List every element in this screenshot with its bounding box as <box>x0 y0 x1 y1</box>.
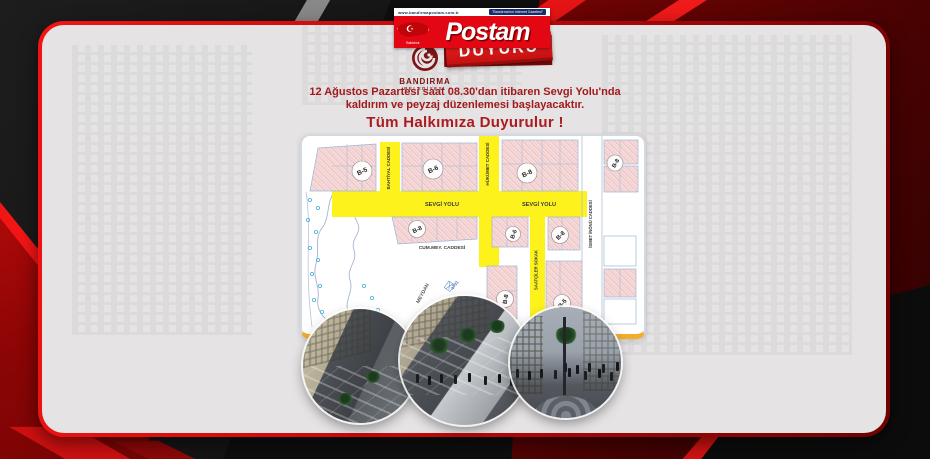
street-label: SEVGİ YOLU <box>522 201 556 208</box>
announcement-headline: Tüm Halkımıza Duyurulur ! <box>42 114 888 131</box>
turkey-map-icon: ☪ Balıkesir <box>397 19 431 45</box>
block-badge: B-6 <box>423 159 443 179</box>
slogan-badge: "Bandırma'nın İnternet Gazetesi" <box>489 9 546 15</box>
block-badge: B-8 <box>409 221 426 238</box>
street-label: İSMET İNÖNÜ CADDESİ <box>588 200 593 247</box>
municipality-name: BANDIRMA <box>396 77 454 86</box>
postam-logo-main: ☪ Balıkesir Postam <box>394 16 550 48</box>
crescent-star-icon: ☪ <box>406 22 414 36</box>
postam-wordmark: Postam <box>431 17 550 47</box>
masthead-strip: www.bandirmapostam.com.tr "Bandırma'nın … <box>394 8 550 16</box>
street-render-ground-right <box>510 307 621 418</box>
block-badge: B-8 <box>517 163 537 183</box>
announcement-line-2: kaldırım ve peyzaj düzenlemesi başlayaca… <box>42 99 888 111</box>
region-label: Balıkesir <box>397 41 429 45</box>
block-badge: B-8 <box>552 227 569 244</box>
pedestrian-silhouettes <box>588 363 591 372</box>
announcement-line-1: 12 Ağustos Pazartesi saat 08.30'dan itib… <box>42 86 888 98</box>
block-badge: B-5 <box>352 161 372 181</box>
street-label: SEVGİ YOLU <box>425 201 459 208</box>
street-label: BAHTİYAL CADDESİ <box>386 147 391 190</box>
site-url: www.bandirmapostam.com.tr <box>398 10 459 15</box>
block-badge: B-6 <box>506 227 521 242</box>
street-label: HÜKÜMET CADDESİ <box>485 143 490 186</box>
palm-tree-icon <box>554 327 578 344</box>
building-facade <box>510 316 543 394</box>
circular-paving <box>534 396 598 418</box>
palm-tree-icon <box>365 371 381 383</box>
block-badge: B-8 <box>607 155 623 171</box>
municipality-subtitle: BELEDİYESİ <box>396 86 454 91</box>
pedestrian-silhouettes <box>540 369 543 378</box>
block-badge: B-8 <box>497 291 514 308</box>
building-facade <box>583 311 621 391</box>
pedestrian-silhouettes <box>440 374 443 383</box>
street-pole <box>563 317 566 395</box>
palm-tree-icon <box>458 328 478 343</box>
postam-logo: www.bandirmapostam.com.tr "Bandırma'nın … <box>394 8 550 48</box>
palm-tree-icon <box>337 393 353 405</box>
building-facade <box>303 309 371 369</box>
palm-tree-icon <box>428 338 450 354</box>
street-label: CUM.MEY. CADDESİ <box>419 244 466 251</box>
palm-tree-icon <box>488 320 506 333</box>
announcement-graphic: DUYURU www.bandirmapostam.com.tr "Bandır… <box>0 0 930 459</box>
street-label: SAATÇİLER SOKAK <box>534 250 539 290</box>
